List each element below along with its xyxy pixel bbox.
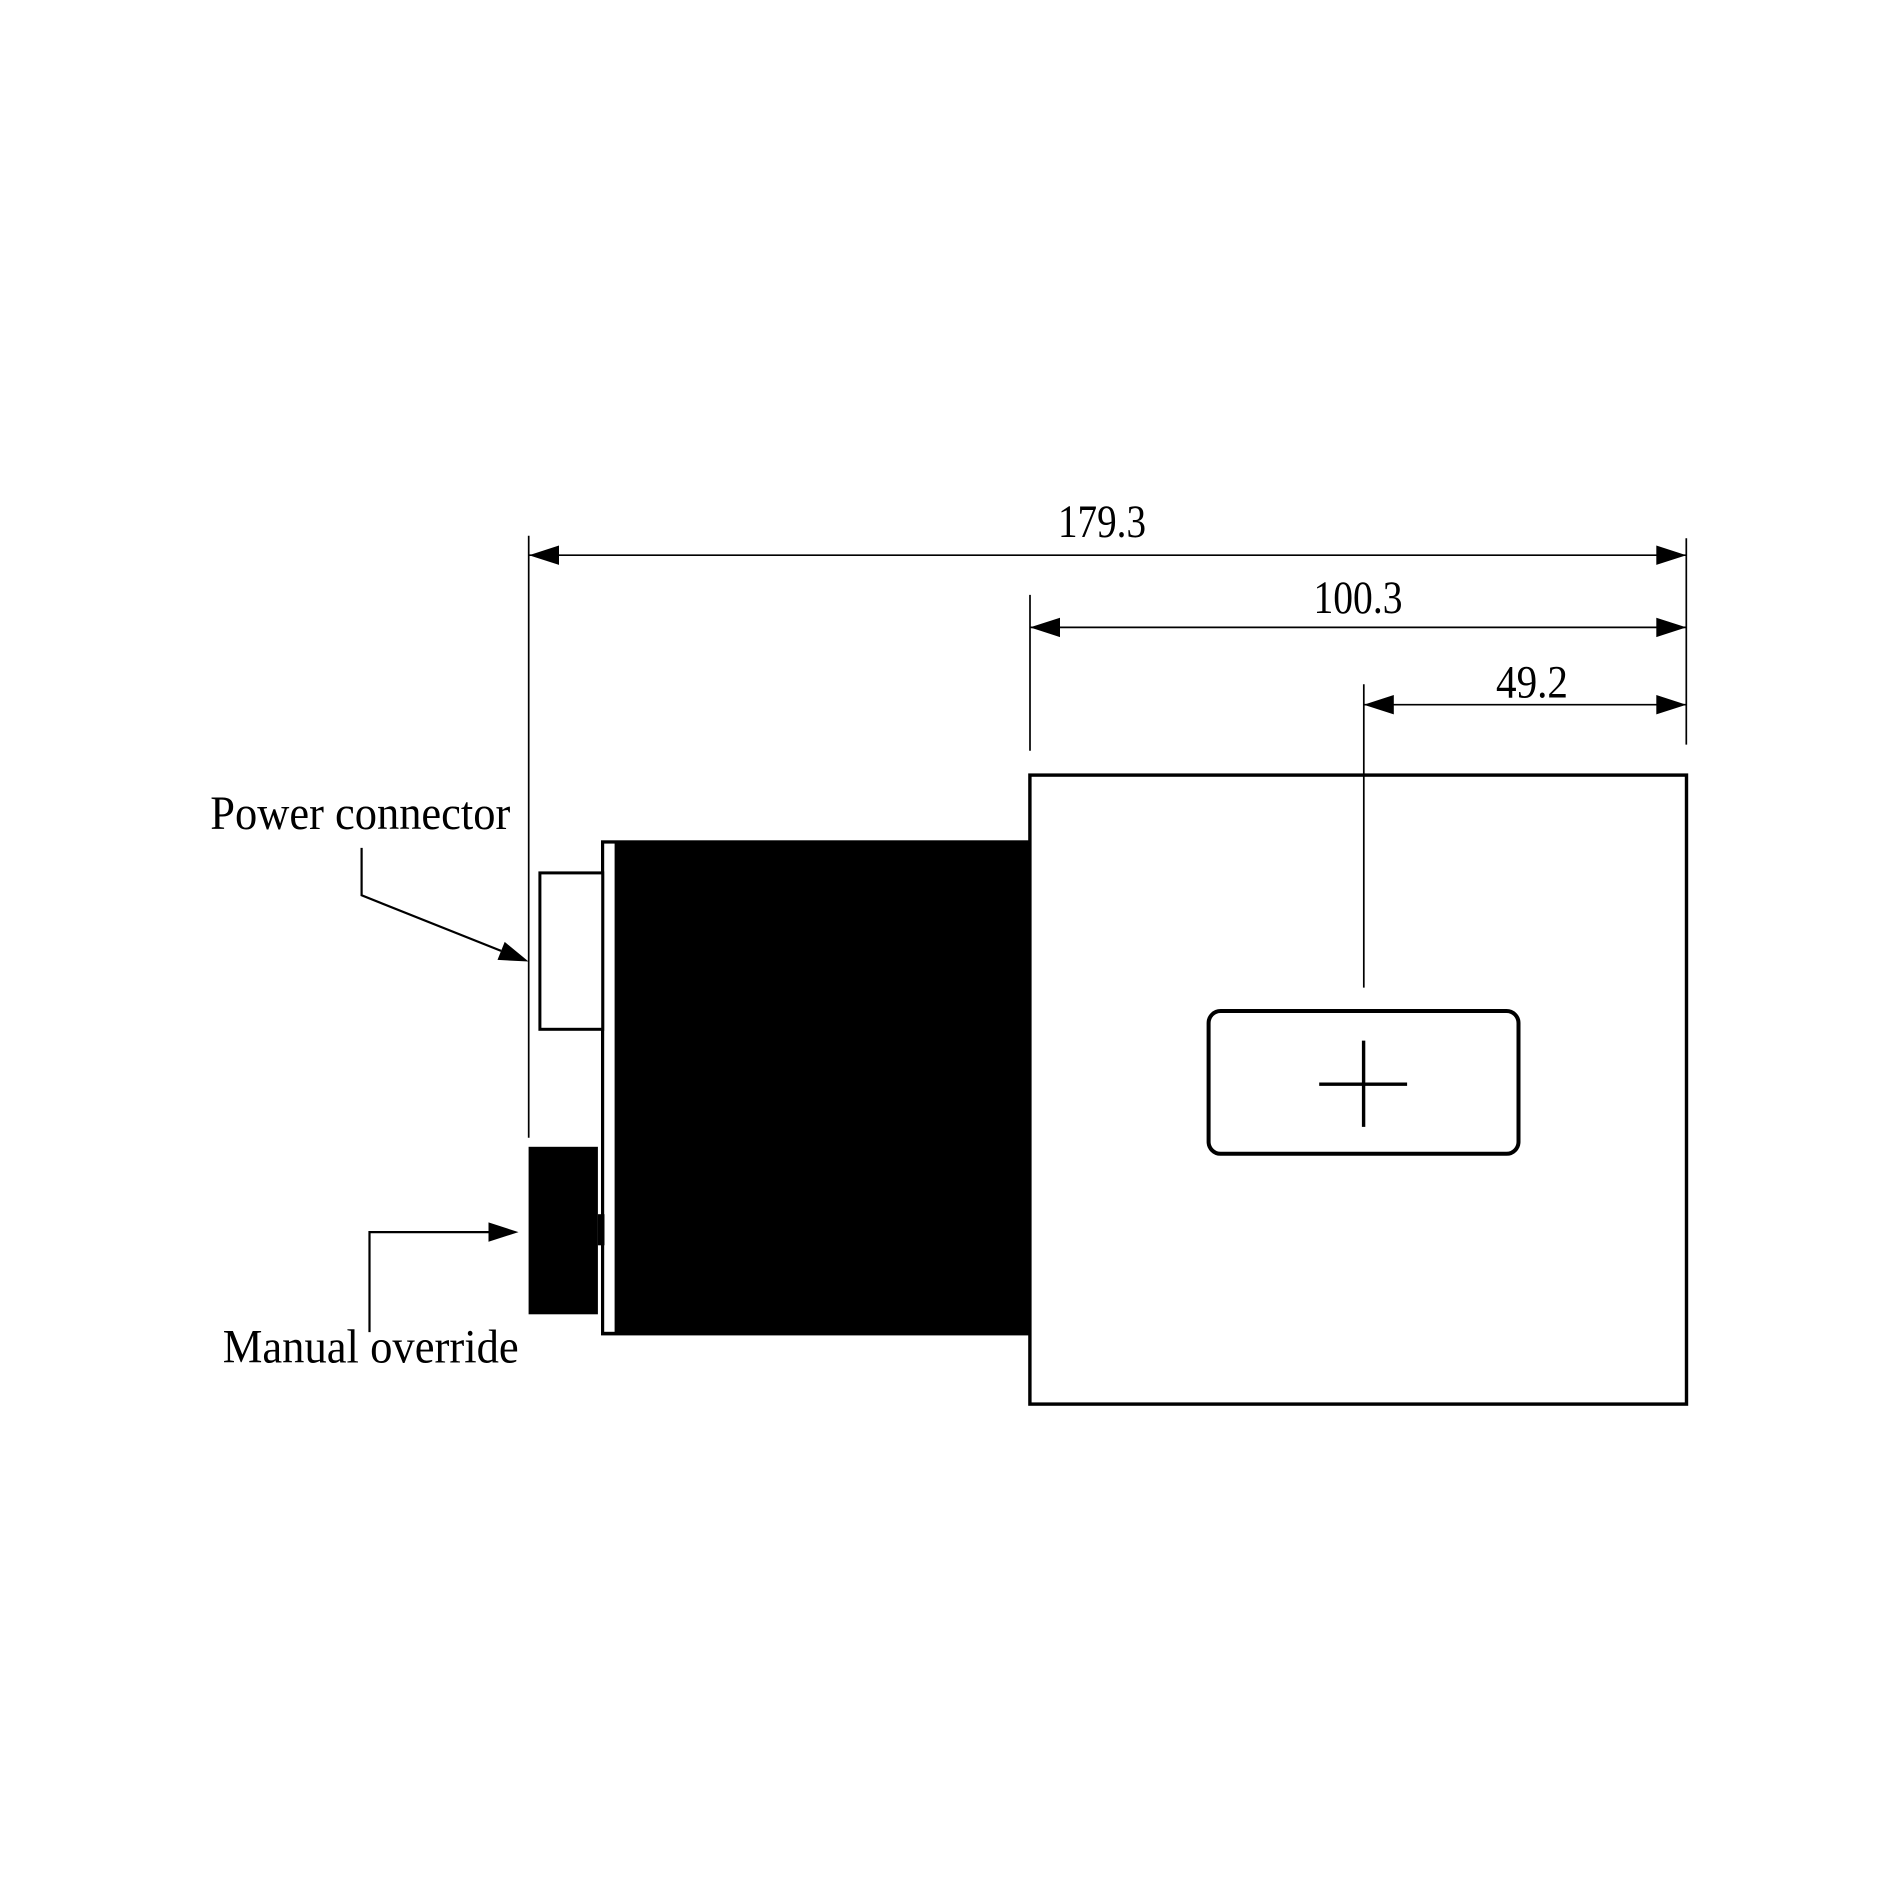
svg-text:Manual override: Manual override (223, 1321, 519, 1374)
svg-text:49.2: 49.2 (1496, 656, 1568, 708)
svg-text:100.3: 100.3 (1314, 572, 1403, 624)
svg-text:Power connector: Power connector (210, 787, 510, 840)
svg-text:179.3: 179.3 (1058, 496, 1146, 548)
